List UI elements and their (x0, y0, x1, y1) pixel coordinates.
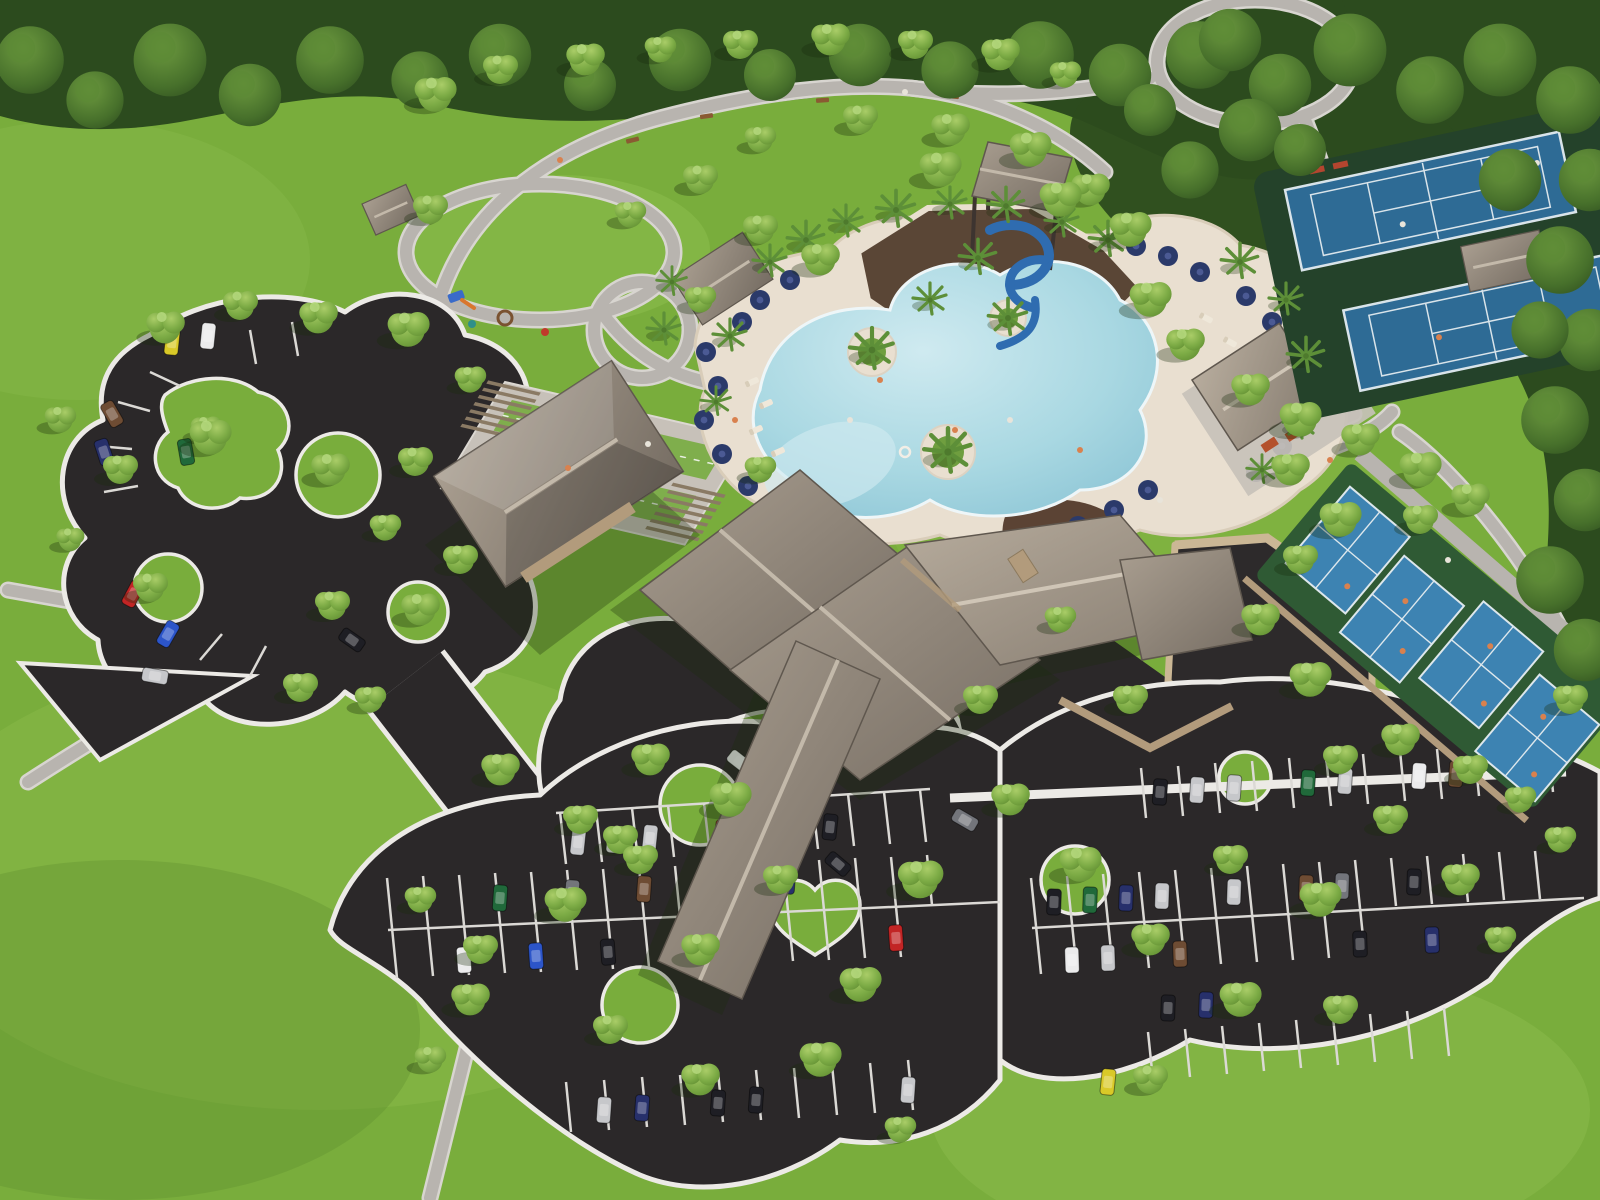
aerial-site-rendering (0, 0, 1600, 1200)
